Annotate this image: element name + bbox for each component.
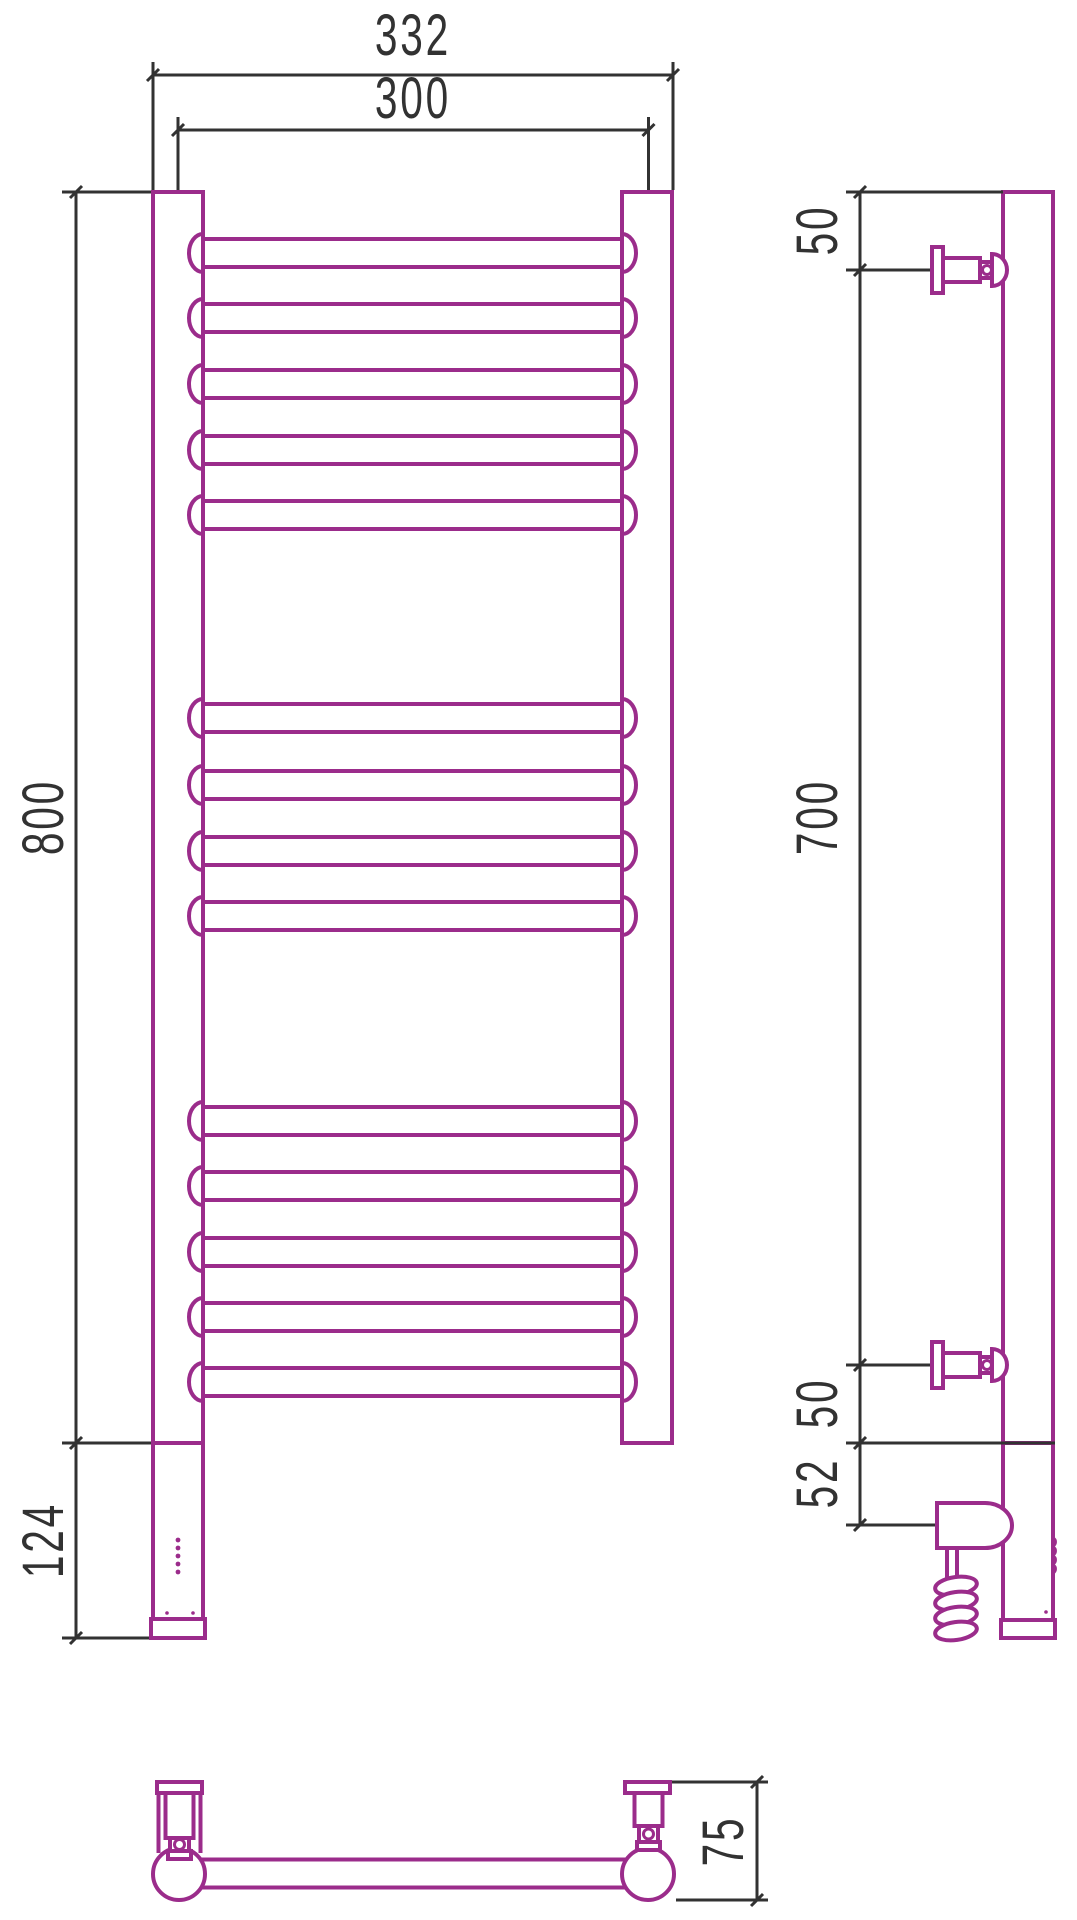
wall-bracket-bottom [932,1342,1007,1388]
heater-knob [937,1503,1012,1548]
dim-wall-depth-label: 75 [695,1816,753,1867]
dim-top-offset-label: 50 [789,205,847,256]
dim-height-label: 800 [15,779,73,855]
dim-bracket-span-label: 700 [789,779,847,855]
dim-overall-width-label: 332 [375,7,451,65]
front-view [151,192,672,1638]
rung [189,1167,636,1205]
power-cable-coil [934,1548,978,1643]
dim-heater-offset-label: 52 [789,1458,847,1509]
heater-housing-front [151,1443,205,1638]
dim-heater-height-label: 124 [15,1502,73,1578]
dim-bottom-offset-label: 50 [789,1378,847,1429]
rung [189,365,636,403]
bottom-bracket-right [625,1782,670,1850]
wall-bracket-top [932,247,1007,293]
screw-dot [191,1611,195,1615]
rung [189,1298,636,1336]
bottom-view [153,1782,674,1900]
rung [189,299,636,337]
dim-axis-width-label: 300 [375,70,451,128]
technical-drawing-canvas: 332 300 800 124 50 700 50 52 75 [0,0,1077,1920]
screw-dot [165,1611,169,1615]
right-pipe-section [622,1848,674,1900]
rung [189,832,636,870]
rung [189,496,636,534]
housing-bottom-cap [1001,1620,1055,1638]
rung [189,699,636,737]
screw-dot [1044,1610,1048,1614]
rung [189,431,636,469]
rung [189,766,636,804]
rung [189,234,636,272]
side-pipe [1003,192,1053,1443]
side-view [932,192,1055,1643]
rung [189,897,636,935]
rung [189,1102,636,1140]
dimension-lines [62,62,1055,1906]
rung [189,1233,636,1271]
rung [189,1363,636,1401]
bottom-bracket-left [157,1782,202,1859]
drawing-svg [0,0,1077,1920]
